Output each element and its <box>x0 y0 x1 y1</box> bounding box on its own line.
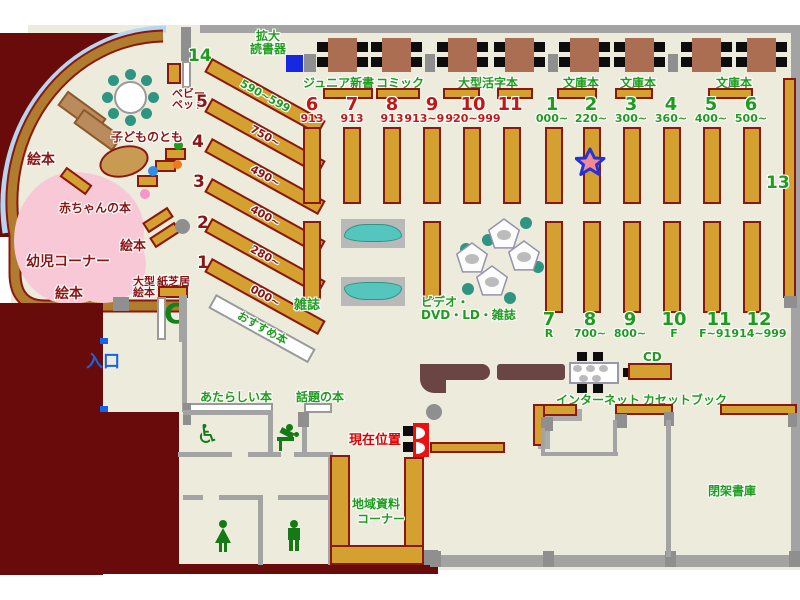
bookshelf <box>423 221 441 300</box>
bench-seat <box>344 224 402 242</box>
wheelchair-icon: ♿ <box>196 420 219 450</box>
av-booth-tables <box>452 213 546 305</box>
baby-bed-shelf <box>167 63 181 84</box>
chair <box>102 92 113 103</box>
pillar <box>306 54 316 72</box>
picture-books-label: 絵本 <box>27 149 55 169</box>
kodomonotomo-label: 子どものとも <box>111 128 183 145</box>
reading-table <box>437 38 488 72</box>
picture-books-label: 絵本 <box>120 235 146 254</box>
wall <box>183 495 203 500</box>
wall <box>258 497 263 565</box>
reading-table <box>317 38 368 72</box>
low-shelf <box>430 442 505 453</box>
entrance-label: 入口 <box>86 347 120 372</box>
bookshelf <box>703 221 721 313</box>
library-floor-map: 入口 絵本 子どものとも 赤ちゃんの本 絵本 幼児コーナー 絵本 大型 絵本 紙… <box>0 0 800 600</box>
wall-bottom-gray <box>430 555 792 567</box>
bookshelf <box>383 127 401 204</box>
shelf-header: 6500~ <box>723 97 779 125</box>
entrance-door-mark <box>100 406 108 412</box>
bookshelf <box>343 127 361 204</box>
large-picture-books-label-2: 絵本 <box>133 284 155 300</box>
man-icon <box>286 520 302 552</box>
magazines-label: 雑誌 <box>294 294 320 313</box>
wall <box>278 495 330 500</box>
bookshelf <box>463 127 481 204</box>
woman-icon <box>215 520 230 552</box>
pillar <box>789 551 800 567</box>
bookshelf <box>623 221 641 313</box>
wall <box>219 495 263 500</box>
pillar <box>113 297 129 311</box>
shelf-no: 4 <box>192 132 204 152</box>
magnifier-label-2: 読書器 <box>250 40 286 57</box>
service-counter <box>428 364 490 380</box>
wall <box>178 452 232 457</box>
step-shelf <box>137 175 158 187</box>
chair <box>148 92 159 103</box>
reading-table <box>494 38 545 72</box>
bookshelf <box>545 127 563 204</box>
chair <box>125 115 136 126</box>
pillar <box>424 550 438 565</box>
bookshelf <box>303 127 321 204</box>
entrance-door-mark <box>100 338 108 344</box>
baby-changing-icon <box>277 424 301 452</box>
wall <box>302 427 307 455</box>
bookshelf <box>703 127 721 204</box>
reading-table <box>736 38 787 72</box>
bookshelf <box>663 127 681 204</box>
reading-table <box>614 38 665 72</box>
shelf-no-13: 13 <box>766 173 790 193</box>
step-shelf <box>165 148 186 160</box>
bookshelf <box>743 221 761 313</box>
bench-seat <box>344 282 402 300</box>
bookshelf <box>545 221 563 313</box>
bookshelf <box>623 127 641 204</box>
cd-label: CD <box>643 350 662 364</box>
wall <box>183 410 273 415</box>
local-materials-shelf <box>330 545 424 565</box>
pillar-round <box>426 404 442 420</box>
video-label-2: DVD・LD・雑誌 <box>421 306 516 323</box>
chair <box>108 75 119 86</box>
outside-block-lower <box>103 412 179 574</box>
current-location-marker <box>403 423 429 457</box>
low-shelf <box>720 404 797 415</box>
pillar <box>543 551 554 567</box>
wall <box>248 452 281 457</box>
closed-stacks-label: 閉架書庫 <box>708 482 756 499</box>
magnifier-device <box>286 55 303 72</box>
pillar <box>425 54 435 72</box>
stool-blue <box>148 166 158 176</box>
reading-table <box>681 38 732 72</box>
wall <box>541 452 618 456</box>
internet-table <box>566 352 632 393</box>
chair <box>125 69 136 80</box>
stool-orange <box>173 160 182 169</box>
pillar <box>784 296 797 308</box>
outside-block-left <box>0 303 103 575</box>
pillar <box>668 54 678 72</box>
pillar <box>788 413 797 427</box>
star-marker <box>575 147 606 177</box>
shelf-no: 3 <box>193 172 205 192</box>
bookshelf <box>583 221 601 313</box>
current-location-label: 現在位置 <box>349 429 401 448</box>
bookshelf <box>303 221 321 300</box>
bookshelf <box>663 221 681 313</box>
chair <box>108 108 119 119</box>
bookshelf <box>743 127 761 204</box>
pillar <box>548 54 558 72</box>
bookshelf <box>503 127 521 204</box>
reading-table <box>371 38 422 72</box>
chair <box>141 108 152 119</box>
service-counter <box>497 364 565 380</box>
picture-books-label: 絵本 <box>55 283 83 303</box>
local-materials-label-2: コーナー <box>357 510 405 527</box>
cd-shelf <box>628 363 672 380</box>
reading-table <box>559 38 610 72</box>
wall <box>268 410 273 457</box>
wall-stacks <box>666 420 671 557</box>
infant-corner-label: 幼児コーナー <box>26 251 110 271</box>
stool-pink <box>140 189 150 199</box>
bookshelf <box>423 127 441 204</box>
wall-bottom-maroon <box>178 564 438 574</box>
pillar-round <box>175 219 190 234</box>
wall <box>613 420 617 456</box>
chair <box>141 75 152 86</box>
wall <box>182 316 187 412</box>
shelf-header: 12914~999 <box>731 312 787 340</box>
baby-books-label: 赤ちゃんの本 <box>59 199 131 216</box>
